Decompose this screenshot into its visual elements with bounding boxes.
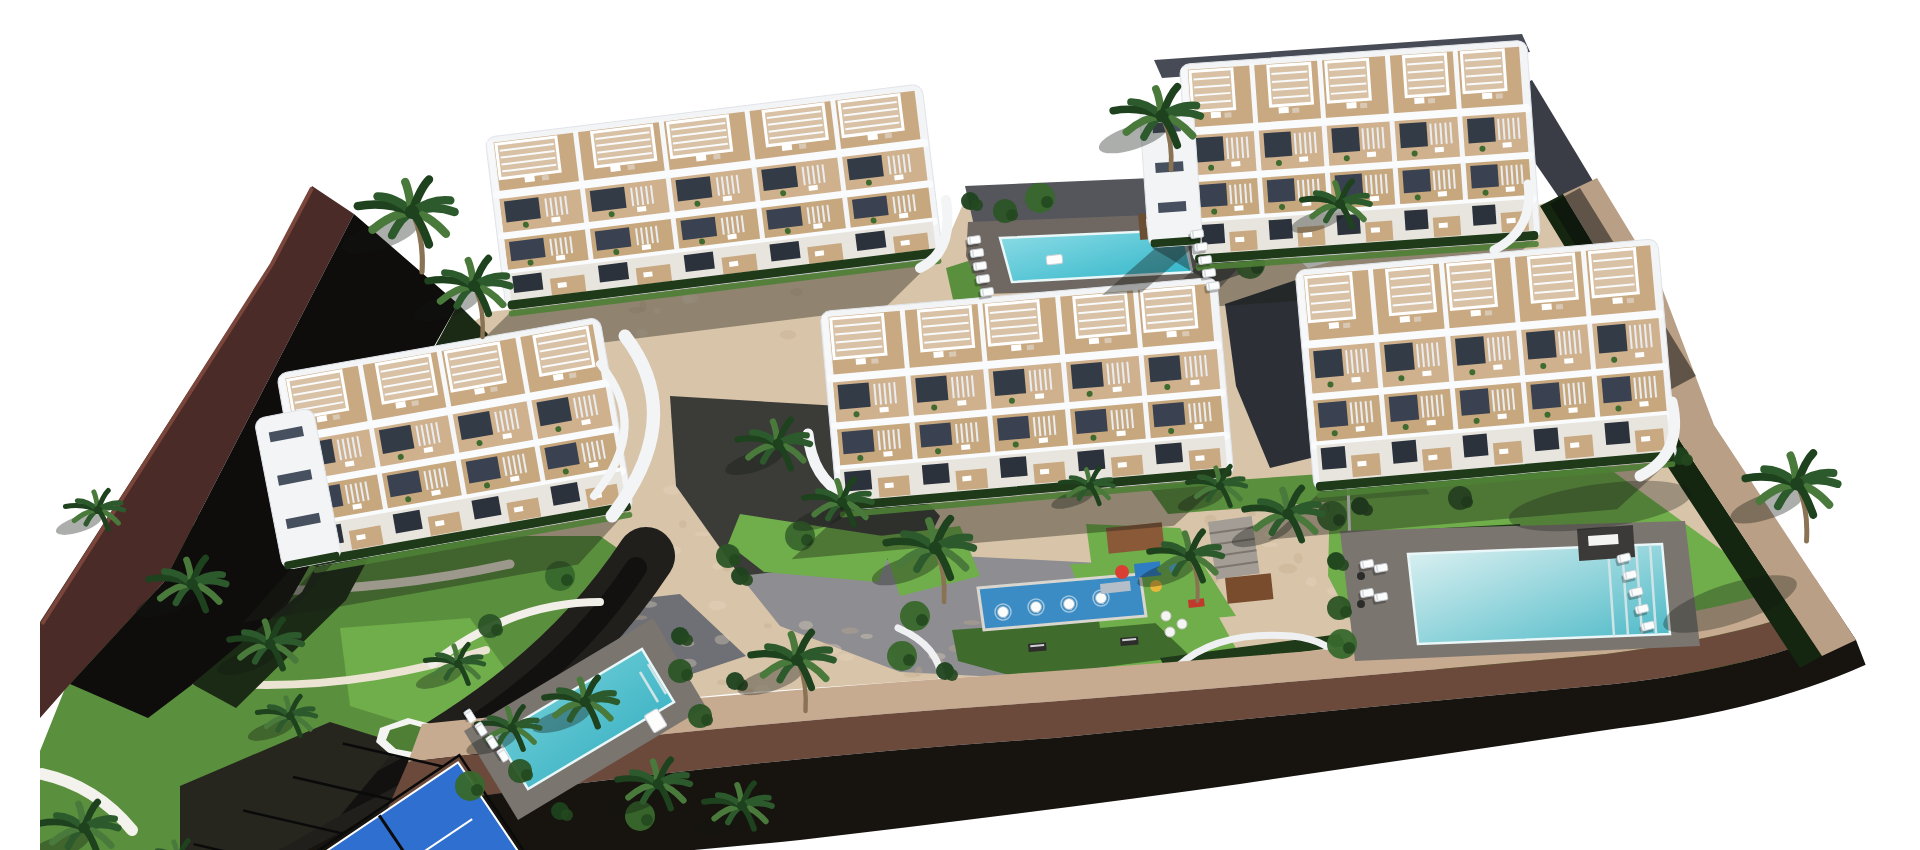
playground-item (1225, 573, 1273, 604)
architectural-site-render (40, 16, 1920, 850)
side-table (1357, 600, 1365, 608)
side-table (1357, 572, 1365, 580)
playground-item (1115, 565, 1129, 579)
pool-lounger (1046, 254, 1063, 265)
site-render-svg (40, 16, 1920, 850)
pool-bottom-right (1340, 521, 1700, 661)
round-lounger (1165, 627, 1175, 637)
round-lounger (1177, 619, 1187, 629)
round-lounger (1161, 611, 1171, 621)
